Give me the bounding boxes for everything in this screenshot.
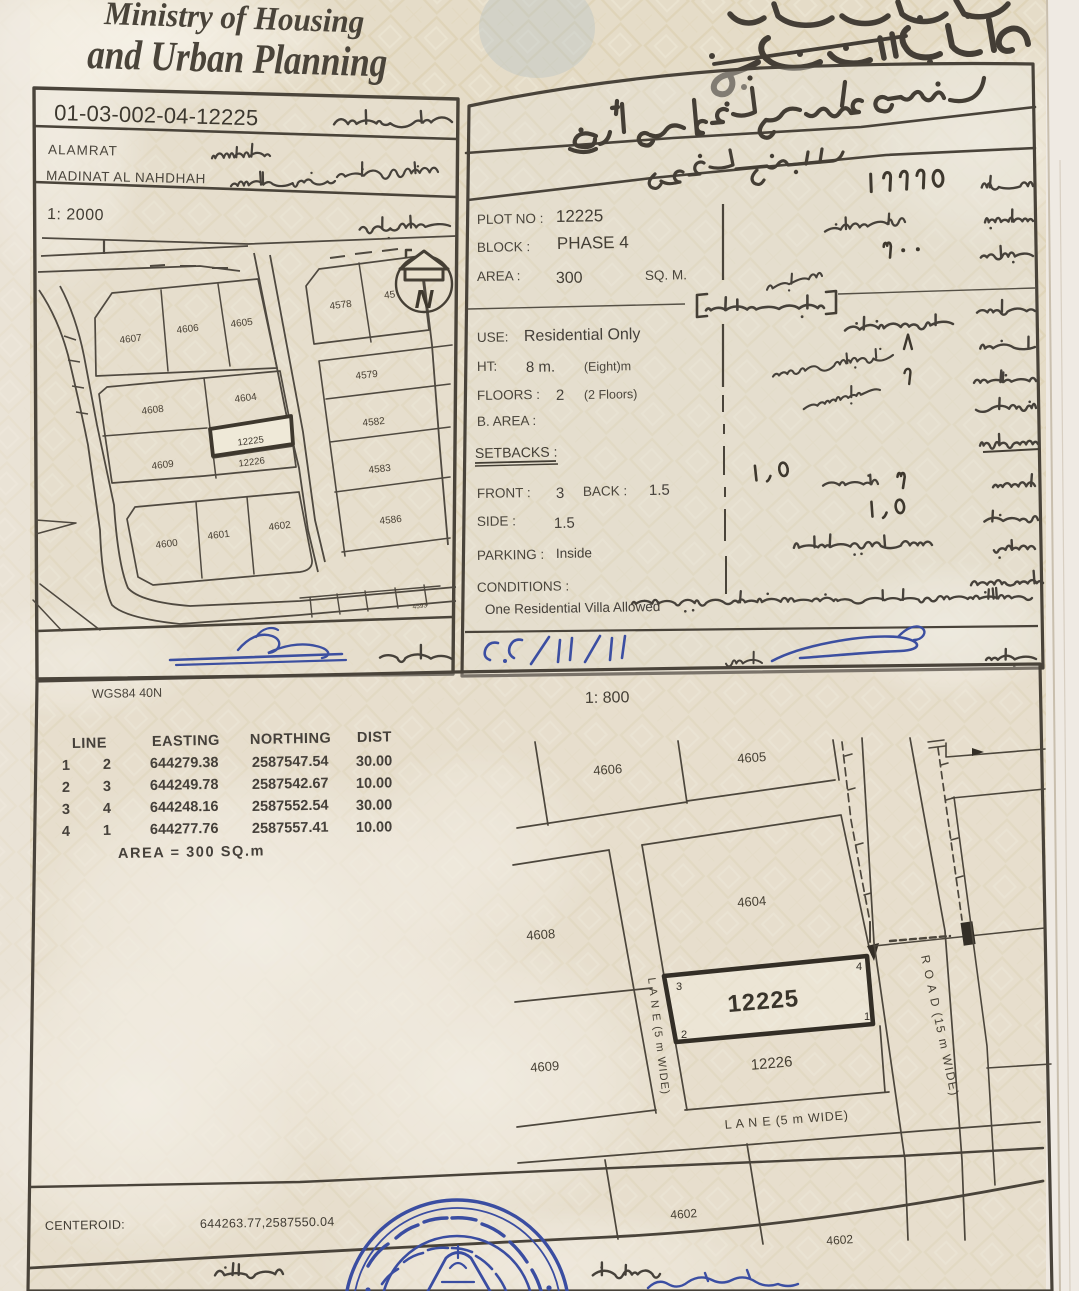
svg-text:4602: 4602 [670,1206,698,1222]
svg-text:30.00: 30.00 [356,753,393,770]
svg-text:EASTING: EASTING [152,733,220,750]
svg-text:PLOT NO :: PLOT NO : [477,211,544,227]
svg-text:CONDITIONS :: CONDITIONS : [477,578,570,595]
svg-text:4602: 4602 [826,1232,854,1248]
svg-text:1: 1 [62,758,70,774]
svg-text:SIDE :: SIDE : [477,513,516,529]
svg-text:3: 3 [62,802,70,818]
svg-text:4604: 4604 [737,893,767,910]
svg-text:B. AREA :: B. AREA : [477,413,537,429]
svg-text:Inside: Inside [556,545,592,561]
svg-text:4605: 4605 [737,749,767,766]
svg-text:1.5: 1.5 [649,482,670,499]
svg-text:30.00: 30.00 [356,797,393,814]
svg-text:2: 2 [103,757,111,773]
svg-text:LINE: LINE [72,735,107,752]
svg-text:4608: 4608 [526,926,556,943]
svg-text:Residential Only: Residential Only [524,326,641,345]
svg-text:10.00: 10.00 [356,775,393,792]
svg-text:BLOCK :: BLOCK : [477,239,531,255]
svg-text:3: 3 [556,485,565,502]
svg-text:01-03-002-04-12225: 01-03-002-04-12225 [54,100,259,130]
svg-text:1: 2000: 1: 2000 [47,206,104,224]
svg-text:CENTEROID:: CENTEROID: [45,1218,125,1233]
svg-text:4: 4 [62,824,70,840]
svg-text:USE:: USE: [477,329,509,345]
svg-text:1: 1 [103,823,111,839]
svg-text:644249.78: 644249.78 [150,777,219,794]
svg-text:HT:: HT: [477,359,498,374]
svg-text:644263.77,2587550.04: 644263.77,2587550.04 [200,1215,335,1231]
svg-text:12226: 12226 [750,1053,793,1074]
svg-text:2587557.41: 2587557.41 [252,820,329,837]
svg-text:2: 2 [556,387,565,404]
svg-text:4606: 4606 [593,761,623,778]
svg-text:2: 2 [62,780,70,796]
svg-text:1: 1 [864,1011,870,1023]
svg-text:PHASE 4: PHASE 4 [557,233,629,253]
svg-text:NORTHING: NORTHING [250,731,332,748]
svg-text:2587542.67: 2587542.67 [252,776,329,793]
svg-text:FRONT :: FRONT : [477,485,531,501]
svg-text:644279.38: 644279.38 [150,755,219,772]
svg-text:SETBACKS :: SETBACKS : [475,444,558,461]
svg-text:WGS84 40N: WGS84 40N [92,686,162,701]
svg-text:644277.76: 644277.76 [150,821,219,838]
svg-text:8 m.: 8 m. [526,358,555,376]
svg-text:3: 3 [676,981,682,993]
svg-text:644248.16: 644248.16 [150,799,219,816]
svg-text:2: 2 [681,1029,687,1041]
svg-text:FLOORS :: FLOORS : [477,387,540,403]
svg-text:4: 4 [856,961,862,973]
svg-text:1: 800: 1: 800 [585,689,630,707]
svg-text:BACK :: BACK : [583,483,628,499]
svg-text:12225: 12225 [556,206,604,226]
svg-text:SQ. M.: SQ. M. [645,267,687,283]
svg-text:AREA :: AREA : [477,268,521,284]
svg-text:and Urban Planning: and Urban Planning [87,32,388,86]
svg-text:4609: 4609 [530,1058,560,1075]
svg-text:DIST: DIST [357,729,392,746]
svg-text:45: 45 [384,289,397,301]
svg-text:(2 Floors): (2 Floors) [584,387,638,402]
svg-text:PARKING :: PARKING : [477,547,545,563]
svg-text:4: 4 [103,801,111,817]
svg-text:2587552.54: 2587552.54 [252,798,329,815]
svg-text:AREA = 300 SQ.m: AREA = 300 SQ.m [118,843,265,862]
svg-text:(Eight)m: (Eight)m [584,359,631,374]
svg-text:N: N [415,284,435,314]
svg-text:ALAMRAT: ALAMRAT [48,142,118,158]
svg-text:300: 300 [556,270,583,287]
svg-text:1.5: 1.5 [554,515,575,532]
svg-text:2587547.54: 2587547.54 [252,754,329,771]
svg-text:10.00: 10.00 [356,819,393,836]
svg-text:3: 3 [103,779,111,795]
